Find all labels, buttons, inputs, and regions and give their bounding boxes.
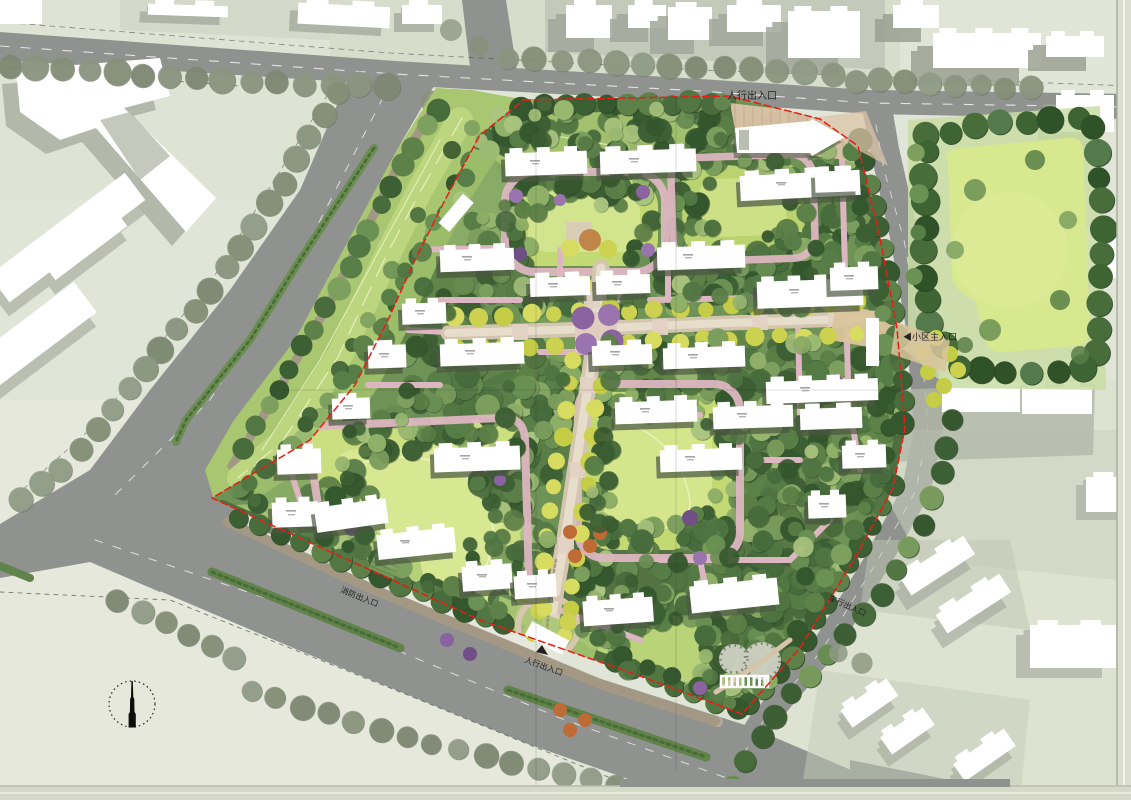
svg-text:人行出入口: 人行出入口 bbox=[727, 89, 777, 102]
svg-text:◀小区主入口: ◀小区主入口 bbox=[903, 331, 957, 342]
